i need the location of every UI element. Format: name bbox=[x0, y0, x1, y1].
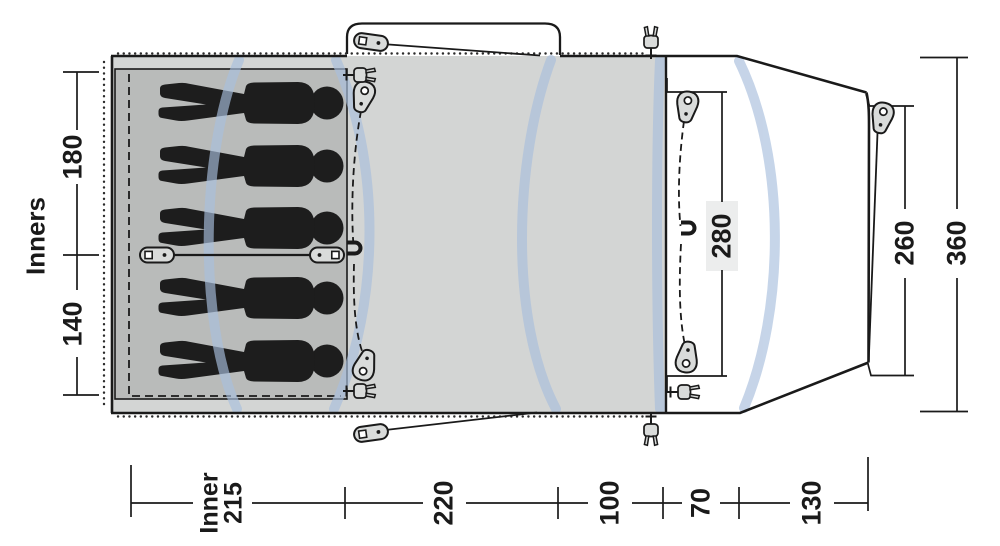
floorplan-canvas bbox=[0, 0, 1000, 546]
divider-toggle-right-icon bbox=[310, 248, 344, 263]
bottom-peg-icon bbox=[353, 423, 389, 443]
divider-toggle-left-icon bbox=[140, 248, 174, 263]
dim-bottom-ticks bbox=[131, 457, 868, 519]
dim-left-ticks bbox=[63, 72, 99, 395]
dim-360 bbox=[920, 58, 968, 412]
guy-line-bottom bbox=[381, 413, 537, 431]
pole-arc-4 bbox=[657, 60, 660, 409]
power-plug-icon bbox=[644, 413, 658, 445]
tent-floorplan-diagram: Inners 180 140 Inner 215 220 100 70 130 … bbox=[0, 0, 1000, 546]
power-plug-icon bbox=[644, 27, 658, 59]
dim-280-badge bbox=[706, 201, 738, 271]
